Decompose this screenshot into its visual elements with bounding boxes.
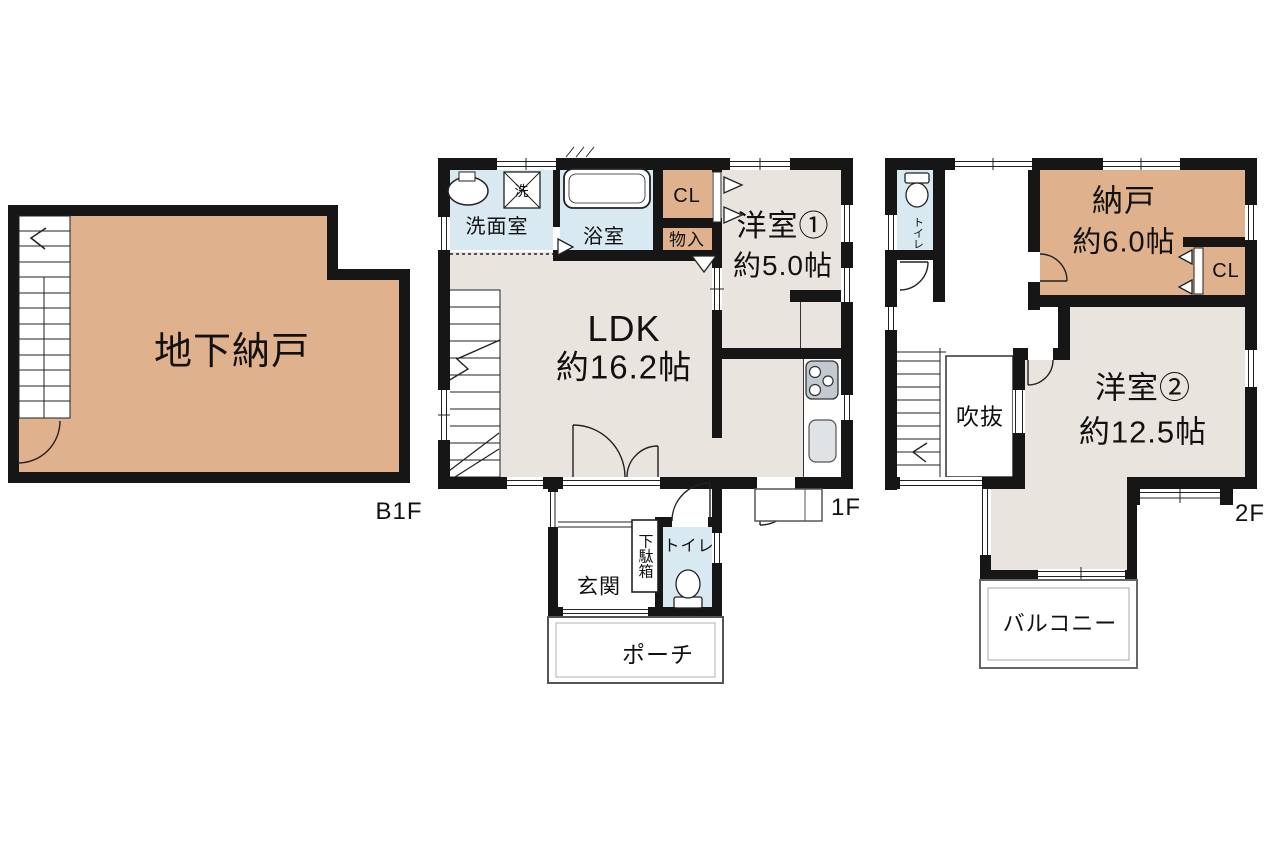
- back-porch-outline: [755, 489, 822, 521]
- floor-label-b1f: B1F: [375, 500, 422, 524]
- room-label-washroom: 洗面室: [466, 217, 529, 237]
- room-label-storage-small: 物入: [669, 232, 705, 249]
- room-label-entrance: 玄関: [577, 577, 621, 598]
- room-label-closet-2f: CL: [1212, 261, 1240, 281]
- floor-plan-canvas: 地下納戸 B1F 洗面室 洗 浴室 CL 物入 洋室① 約5.0帖 LDK 約1…: [0, 0, 1280, 850]
- room-dining: [722, 359, 803, 477]
- toilet-icon: [905, 173, 929, 207]
- closet-door-panel: [713, 172, 721, 222]
- room-label-closet-1f: CL: [673, 186, 701, 206]
- room-size-ldk: 約16.2帖: [556, 351, 692, 384]
- toilet-icon: [674, 570, 702, 608]
- floor-label-2f: 2F: [1235, 502, 1265, 526]
- room-label-underground-storage: 地下納戸: [154, 333, 310, 371]
- room-label-bedroom2: 洋室②: [1095, 373, 1191, 404]
- room-label-bedroom1: 洋室①: [737, 212, 830, 242]
- stairs-icon: [19, 216, 70, 418]
- floor-2f: [885, 158, 1257, 668]
- washer-label: 洗: [515, 184, 530, 198]
- room-size-bedroom1: 約5.0帖: [733, 252, 833, 280]
- stairs-icon: [443, 290, 500, 477]
- room-label-toilet-2f: トイレ: [912, 217, 923, 250]
- room-label-ldk: LDK: [587, 311, 660, 347]
- room-label-porch: ポーチ: [622, 644, 694, 667]
- hatch-marks: [566, 147, 594, 157]
- room-label-storage-2f: 納戸: [1092, 186, 1156, 217]
- room-label-balcony: バルコニー: [1003, 613, 1118, 635]
- room-label-void: 吹抜: [956, 406, 1004, 429]
- stairs-icon: [897, 348, 946, 477]
- room-label-shoe-cabinet: 下駄箱: [638, 534, 653, 579]
- bathtub-icon: [564, 169, 650, 208]
- room-label-toilet-1f: トイレ: [663, 539, 714, 555]
- kitchen-sink-icon: [809, 420, 836, 462]
- closet-door-panel: [1194, 248, 1203, 294]
- room-size-storage-2f: 約6.0帖: [1072, 229, 1175, 258]
- stove-icon: [806, 361, 838, 399]
- room-size-bedroom2: 約12.5帖: [1079, 417, 1207, 448]
- room-label-bathroom: 浴室: [583, 227, 625, 247]
- floor-label-1f: 1F: [831, 496, 861, 520]
